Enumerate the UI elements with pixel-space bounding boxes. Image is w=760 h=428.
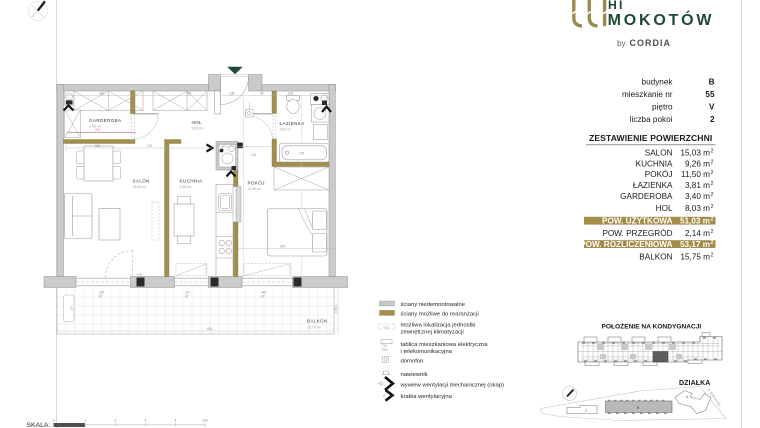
svg-text:wywiew wentylacji mechanicznej: wywiew wentylacji mechanicznej (okap) xyxy=(400,383,504,389)
svg-text:87: 87 xyxy=(185,295,189,299)
svg-text:3,81 m: 3,81 m xyxy=(685,181,710,190)
svg-text:SALON: SALON xyxy=(133,179,150,184)
svg-text:15,03 m²: 15,03 m² xyxy=(133,185,148,189)
svg-text:15,75 m²: 15,75 m² xyxy=(307,326,322,330)
svg-text:2: 2 xyxy=(711,204,714,210)
svg-text:5m: 5m xyxy=(203,418,209,423)
svg-text:tablica mieszkaniowa elektrycz: tablica mieszkaniowa elektryczna xyxy=(401,342,489,348)
svg-text:SALON: SALON xyxy=(645,149,673,158)
svg-text:227: 227 xyxy=(95,128,101,132)
svg-text:114: 114 xyxy=(251,153,256,157)
svg-text:liczba pokoi: liczba pokoi xyxy=(630,115,673,124)
svg-text:8,03 m²: 8,03 m² xyxy=(192,127,205,131)
svg-text:2: 2 xyxy=(711,252,714,258)
svg-text:ściany niedemontowalne: ściany niedemontowalne xyxy=(401,302,466,308)
svg-text:zewnętrznej klimatyzacji: zewnętrznej klimatyzacji xyxy=(401,329,464,335)
svg-text:2: 2 xyxy=(711,170,714,176)
svg-text:TSM: TSM xyxy=(381,348,388,352)
svg-text:625: 625 xyxy=(207,327,213,331)
svg-text:3,81 m²: 3,81 m² xyxy=(280,128,293,132)
svg-text:mieszkanie nr: mieszkanie nr xyxy=(622,90,673,99)
svg-text:MOKOTÓW: MOKOTÓW xyxy=(608,10,715,29)
svg-text:9,26 m: 9,26 m xyxy=(685,159,710,168)
svg-text:2: 2 xyxy=(711,159,714,165)
svg-text:POKÓJ: POKÓJ xyxy=(645,169,673,179)
svg-text:budynek: budynek xyxy=(642,77,674,86)
svg-text:2: 2 xyxy=(711,229,714,235)
svg-text:POKÓJ: POKÓJ xyxy=(248,180,265,186)
svg-text:GARDEROBA: GARDEROBA xyxy=(89,118,122,123)
svg-text:87: 87 xyxy=(261,295,265,299)
svg-text:87: 87 xyxy=(99,295,103,299)
svg-text:+KZ: +KZ xyxy=(70,305,74,311)
svg-text:DZIAŁKA: DZIAŁKA xyxy=(679,380,710,387)
svg-text:8,03 m: 8,03 m xyxy=(685,204,710,213)
svg-text:POW. PRZEGRÓD: POW. PRZEGRÓD xyxy=(602,228,672,238)
svg-text:53,17 m: 53,17 m xyxy=(680,240,710,249)
svg-text:POŁOŻENIE NA KONDYGNACJI: POŁOŻENIE NA KONDYGNACJI xyxy=(602,322,702,330)
svg-text:102: 102 xyxy=(147,144,153,148)
svg-text:2,14 m: 2,14 m xyxy=(685,229,710,238)
svg-text:2: 2 xyxy=(711,192,714,198)
svg-text:216: 216 xyxy=(95,144,101,148)
svg-text:kratka wentylacyjna: kratka wentylacyjna xyxy=(401,394,453,400)
svg-text:KUCHNIA: KUCHNIA xyxy=(180,179,204,184)
svg-text:ZESTAWIENIE POWIERZCHNI: ZESTAWIENIE POWIERZCHNI xyxy=(589,133,712,143)
svg-text:2: 2 xyxy=(711,181,714,187)
svg-text:90: 90 xyxy=(260,92,264,96)
svg-text:HI: HI xyxy=(608,0,625,12)
svg-text:domofon: domofon xyxy=(401,358,424,364)
svg-text:+KZ: +KZ xyxy=(383,325,389,329)
svg-text:9,26 m²: 9,26 m² xyxy=(180,185,193,189)
svg-text:możliwa lokalizacja jednostki: możliwa lokalizacja jednostki xyxy=(401,323,476,329)
svg-text:B: B xyxy=(709,77,715,86)
svg-text:178,5: 178,5 xyxy=(334,305,338,313)
svg-text:138: 138 xyxy=(229,92,235,96)
svg-text:HOL: HOL xyxy=(656,204,673,213)
svg-text:CORDIA: CORDIA xyxy=(630,38,672,48)
svg-text:2: 2 xyxy=(711,216,714,222)
svg-text:piętro: piętro xyxy=(652,102,673,111)
svg-text:POW. ROZLICZENIOWA: POW. ROZLICZENIOWA xyxy=(580,240,672,249)
svg-text:160: 160 xyxy=(99,92,105,96)
svg-text:11,50 m²: 11,50 m² xyxy=(248,187,262,191)
svg-text:+KZ: +KZ xyxy=(137,273,143,277)
svg-text:51,03 m: 51,03 m xyxy=(680,216,710,225)
svg-text:176: 176 xyxy=(299,152,305,156)
svg-text:2: 2 xyxy=(711,149,714,155)
svg-text:ŁAZIENKA: ŁAZIENKA xyxy=(633,181,673,190)
svg-text:GARDEROBA: GARDEROBA xyxy=(620,192,673,201)
svg-text:15,75 m: 15,75 m xyxy=(680,252,710,261)
svg-text:55: 55 xyxy=(705,90,715,99)
svg-text:by: by xyxy=(617,39,625,48)
svg-text:POW. UŻYTKOWA: POW. UŻYTKOWA xyxy=(602,215,673,225)
svg-text:ściany możliwe do rearanżacji: ściany możliwe do rearanżacji xyxy=(401,311,479,317)
svg-text:142: 142 xyxy=(288,92,294,96)
svg-text:2: 2 xyxy=(711,240,714,246)
svg-text:BALKON: BALKON xyxy=(639,252,672,261)
svg-text:BALKON: BALKON xyxy=(307,319,327,324)
svg-text:SKALA:: SKALA: xyxy=(27,422,51,428)
svg-text:3,40 m: 3,40 m xyxy=(685,192,710,201)
svg-text:2: 2 xyxy=(710,115,715,124)
svg-text:11,50 m: 11,50 m xyxy=(681,170,710,179)
svg-text:HOL: HOL xyxy=(192,120,203,125)
svg-text:i telekomunikacyjna: i telekomunikacyjna xyxy=(401,349,453,355)
svg-text:265: 265 xyxy=(186,92,192,96)
svg-text:V: V xyxy=(709,102,715,111)
svg-text:15,03 m: 15,03 m xyxy=(680,149,710,158)
svg-text:nawiewnik: nawiewnik xyxy=(401,372,428,378)
svg-text:200: 200 xyxy=(280,244,286,248)
svg-text:ŁAZIENKA: ŁAZIENKA xyxy=(280,121,306,126)
svg-text:KUCHNIA: KUCHNIA xyxy=(636,159,673,168)
